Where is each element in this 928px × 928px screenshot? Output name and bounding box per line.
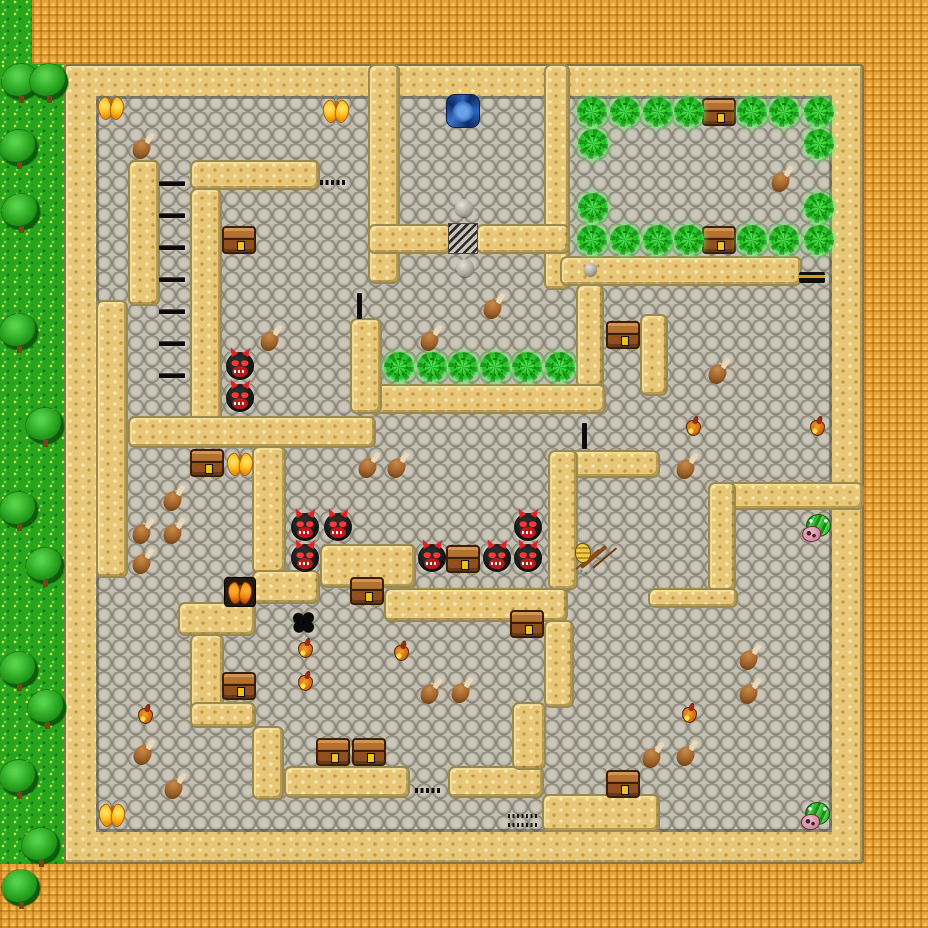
tree	[22, 828, 60, 864]
tree	[2, 194, 40, 230]
tree	[0, 492, 38, 528]
tree	[28, 690, 66, 726]
tree	[0, 314, 38, 350]
tree	[30, 64, 68, 100]
tree	[26, 548, 64, 584]
tree	[26, 408, 64, 444]
game-viewport	[0, 0, 928, 928]
tree	[0, 652, 38, 688]
tree	[2, 870, 40, 906]
tree	[0, 760, 38, 796]
tree	[0, 130, 38, 166]
flora-layer	[0, 0, 928, 928]
